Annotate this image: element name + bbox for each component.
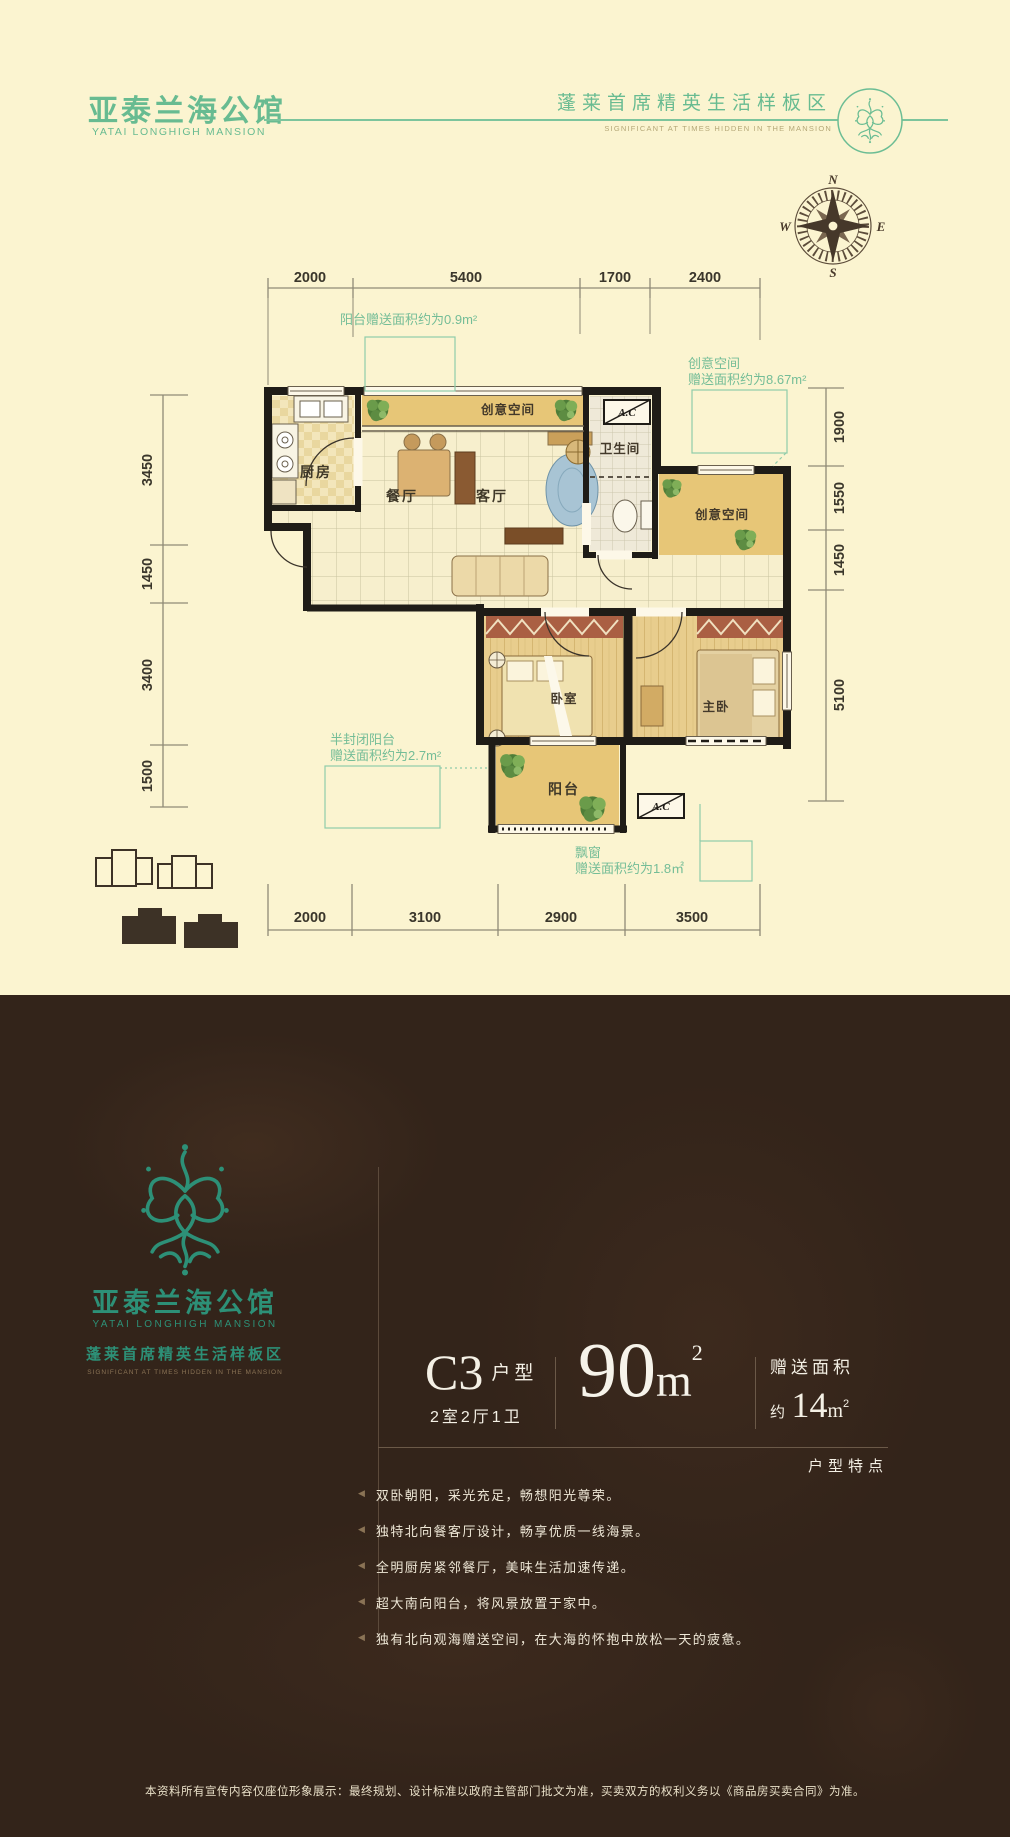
room-kitchen: 厨房 [300, 464, 332, 480]
info-panel: 亚泰兰海公馆 YATAI LONGHIGH MANSION 蓬莱首席精英生活样板… [0, 995, 1010, 1837]
ac-label: A.C [651, 801, 670, 813]
feature-item: ◀ 独特北向餐客厅设计，畅享优质一线海景。 [358, 1521, 750, 1540]
floor-plan-canvas: N E S W 2000 [0, 140, 1010, 995]
note-creative-gift-2: 赠送面积约为8.67m² [688, 372, 807, 387]
area-unit: m [656, 1355, 692, 1406]
header-tagline-en: SIGNIFICANT AT TIMES HIDDEN IN THE MANSI… [604, 124, 832, 133]
header-rule [902, 119, 948, 121]
unit-area: 90m2 [578, 1331, 703, 1409]
room-bedroom: 卧室 [550, 691, 577, 706]
gift-unit: m [827, 1400, 843, 1422]
feature-marker-icon: ◀ [358, 1632, 365, 1643]
brand-subtitle: YATAI LONGHIGH MANSION [92, 126, 266, 138]
panel-brand-subtitle: YATAI LONGHIGH MANSION [60, 1319, 310, 1330]
note-semi-balcony-1: 半封闭阳台 [330, 732, 395, 747]
note-semi-balcony-2: 赠送面积约为2.7m² [330, 748, 442, 763]
room-creative-1: 创意空间 [480, 402, 535, 417]
dim-bottom-1: 2000 [294, 910, 326, 926]
brand-emblem-icon [112, 1133, 258, 1283]
header-rule [264, 119, 838, 121]
dim-bottom-3: 2900 [545, 910, 577, 926]
dim-right-2: 1550 [832, 482, 848, 514]
gift-number: 14 [791, 1385, 827, 1425]
dim-right-1: 1900 [832, 411, 848, 443]
header-tagline: 蓬莱首席精英生活样板区 [557, 88, 832, 115]
dim-right-3: 1450 [832, 544, 848, 576]
room-dining: 餐厅 [385, 488, 418, 504]
features-list: ◀ 双卧朝阳，采光充足，畅想阳光尊荣。 ◀ 独特北向餐客厅设计，畅享优质一线海景… [358, 1485, 750, 1665]
disclaimer-text: 本资料所有宣传内容仅座位形象展示：最终规划、设计标准以政府主管部门批文为准，买卖… [0, 1783, 1010, 1799]
feature-item: ◀ 双卧朝阳，采光充足，畅想阳光尊荣。 [358, 1485, 750, 1504]
dim-top-3: 1700 [599, 270, 631, 286]
dim-right-4: 5100 [832, 679, 848, 711]
feature-text: 超大南向阳台，将风景放置于家中。 [376, 1593, 606, 1612]
room-bath: 卫生间 [600, 441, 641, 456]
compass-s: S [829, 265, 836, 280]
compass-n: N [827, 172, 838, 187]
feature-text: 双卧朝阳，采光充足，畅想阳光尊荣。 [376, 1485, 621, 1504]
gift-area-block: 赠送面积 约 14m2 [770, 1353, 854, 1426]
ac-label: A.C [617, 407, 636, 419]
panel-tagline-en: SIGNIFICANT AT TIMES HIDDEN IN THE MANSI… [48, 1369, 322, 1376]
note-creative-gift-1: 创意空间 [688, 356, 740, 371]
gift-superscript: 2 [843, 1398, 849, 1410]
dim-bottom-2: 3100 [409, 910, 441, 926]
compass-e: E [876, 219, 886, 234]
dim-left-4: 1500 [140, 760, 156, 792]
dim-top-2: 5400 [450, 270, 482, 286]
dim-top-4: 2400 [689, 270, 721, 286]
feature-marker-icon: ◀ [358, 1488, 365, 1499]
feature-marker-icon: ◀ [358, 1560, 365, 1571]
gift-prefix: 约 [770, 1404, 787, 1421]
room-living: 客厅 [475, 488, 508, 504]
unit-layout: 2室2厅1卫 [430, 1403, 523, 1427]
feature-marker-icon: ◀ [358, 1524, 365, 1535]
panel-tagline: 蓬莱首席精英生活样板区 [48, 1343, 322, 1364]
unit-code: C3 [425, 1344, 483, 1400]
compass-rose: N E S W [779, 172, 885, 280]
site-key-buildings [96, 850, 238, 948]
room-master: 主卧 [702, 699, 729, 714]
spec-divider [755, 1357, 756, 1429]
gift-value: 约 14m2 [770, 1384, 854, 1426]
dim-left-3: 3400 [140, 659, 156, 691]
feature-item: ◀ 独有北向观海赠送空间，在大海的怀抱中放松一天的疲惫。 [358, 1629, 750, 1648]
dim-bottom-4: 3500 [676, 910, 708, 926]
flyer-sheet: 亚泰兰海公馆 YATAI LONGHIGH MANSION 蓬莱首席精英生活样板… [0, 0, 1010, 1837]
unit-code-block: C3户型 [425, 1347, 537, 1397]
note-balcony-gift: 阳台赠送面积约为0.9m² [340, 312, 478, 327]
area-number: 90 [578, 1326, 656, 1413]
spec-divider [555, 1357, 556, 1429]
note-bay-window-1: 飘窗 [575, 845, 601, 860]
dim-top-1: 2000 [294, 270, 326, 286]
area-superscript: 2 [692, 1340, 703, 1365]
feature-text: 独特北向餐客厅设计，畅享优质一线海景。 [376, 1521, 650, 1540]
room-creative-2: 创意空间 [694, 507, 749, 522]
dim-left-2: 1450 [140, 558, 156, 590]
feature-marker-icon: ◀ [358, 1596, 365, 1607]
note-bay-window-2: 赠送面积约为1.8㎡ [575, 861, 684, 876]
room-balcony: 阳台 [548, 781, 580, 797]
feature-item: ◀ 全明厨房紧邻餐厅，美味生活加速传递。 [358, 1557, 750, 1576]
feature-text: 独有北向观海赠送空间，在大海的怀抱中放松一天的疲惫。 [376, 1629, 750, 1648]
compass-w: W [779, 219, 792, 234]
gift-label: 赠送面积 [770, 1353, 854, 1378]
unit-type-label: 户型 [491, 1363, 537, 1384]
feature-item: ◀ 超大南向阳台，将风景放置于家中。 [358, 1593, 750, 1612]
dim-left-1: 3450 [140, 454, 156, 486]
feature-text: 全明厨房紧邻餐厅，美味生活加速传递。 [376, 1557, 635, 1576]
features-title: 户型特点 [700, 1455, 888, 1476]
brand-title: 亚泰兰海公馆 [88, 86, 286, 130]
panel-brand-title: 亚泰兰海公馆 [60, 1281, 310, 1320]
features-rule [378, 1447, 888, 1448]
